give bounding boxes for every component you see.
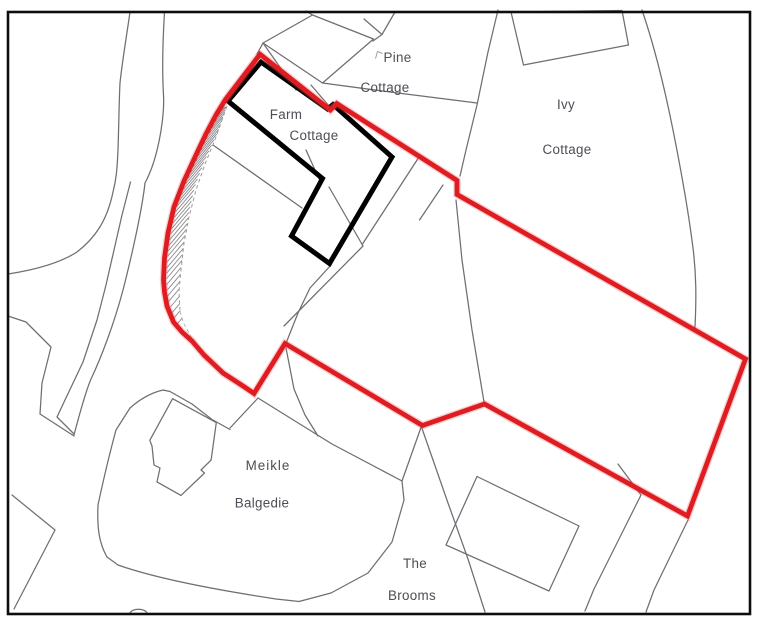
svg-text:Pine: Pine (383, 50, 411, 65)
svg-text:Ivy: Ivy (557, 97, 575, 112)
svg-text:Cottage: Cottage (361, 80, 410, 95)
svg-text:Cottage: Cottage (543, 142, 592, 157)
svg-text:Brooms: Brooms (388, 588, 436, 603)
svg-text:Farm: Farm (270, 107, 302, 122)
svg-text:Meikle: Meikle (246, 458, 291, 473)
svg-text:Cottage: Cottage (290, 128, 339, 143)
svg-text:Balgedie: Balgedie (235, 496, 290, 511)
svg-text:The: The (403, 556, 427, 571)
